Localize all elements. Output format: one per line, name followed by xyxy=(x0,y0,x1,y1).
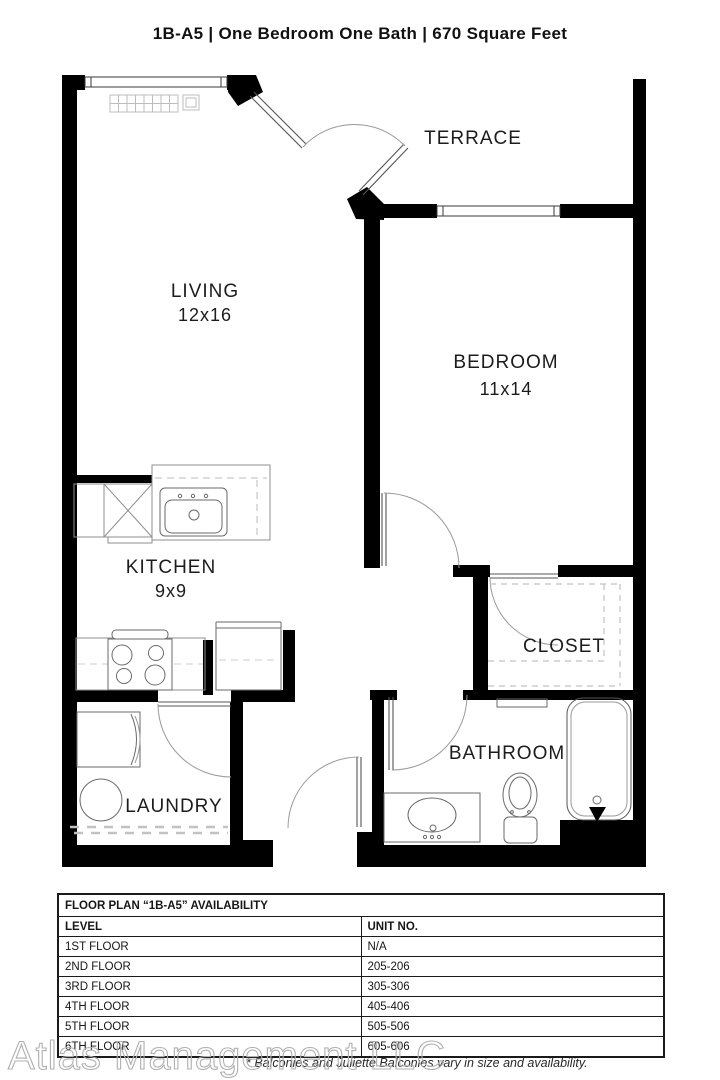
table-row: 3RD FLOOR 305-306 xyxy=(58,977,664,997)
stove xyxy=(108,630,172,690)
table-row: 4TH FLOOR 405-406 xyxy=(58,997,664,1017)
table-row: 1ST FLOOR N/A xyxy=(58,937,664,957)
bedroom-window xyxy=(437,206,560,216)
kitchen-label: KITCHEN xyxy=(126,557,216,578)
bedroom-label: BEDROOM xyxy=(453,352,558,373)
refrigerator xyxy=(216,622,281,690)
bathroom-niche xyxy=(497,699,547,707)
bathroom-label: BATHROOM xyxy=(449,743,565,764)
kitchen-sink xyxy=(160,488,227,536)
entry-door xyxy=(288,757,361,828)
table-row: 2ND FLOOR 205-206 xyxy=(58,957,664,977)
level-cell: 3RD FLOOR xyxy=(58,977,361,997)
toilet xyxy=(503,773,537,843)
bedroom-dims: 11x14 xyxy=(480,379,533,399)
closet-shelf-dashes xyxy=(488,584,620,686)
bathtub xyxy=(567,698,631,822)
terrace-french-door xyxy=(250,92,408,195)
laundry-shelf-dashes xyxy=(70,827,228,833)
living-window xyxy=(85,77,227,87)
unit-cell: 405-406 xyxy=(361,997,664,1017)
laundry-label: LAUNDRY xyxy=(125,796,222,817)
col-unit-no: UNIT NO. xyxy=(361,917,664,937)
floor-plan-drawing: TERRACE LIVING 12x16 BEDROOM 11x14 KITCH… xyxy=(0,0,720,890)
unit-cell: 205-206 xyxy=(361,957,664,977)
table-title-row: FLOOR PLAN “1B-A5” AVAILABILITY xyxy=(58,894,664,917)
kitchen-pantry xyxy=(74,484,152,543)
laundry-door xyxy=(158,702,231,777)
bedroom-door xyxy=(382,493,459,568)
closet-door xyxy=(490,574,558,645)
table-title: FLOOR PLAN “1B-A5” AVAILABILITY xyxy=(58,894,664,917)
living-label: LIVING xyxy=(171,281,239,302)
water-heater xyxy=(80,779,122,821)
washer xyxy=(77,712,140,767)
table-header-row: LEVEL UNIT NO. xyxy=(58,917,664,937)
unit-cell: N/A xyxy=(361,937,664,957)
heater-grid xyxy=(110,95,199,112)
col-level: LEVEL xyxy=(58,917,361,937)
watermark-text: Atlas Management LLC xyxy=(8,1034,446,1079)
kitchen-dims: 9x9 xyxy=(155,581,187,601)
terrace-label: TERRACE xyxy=(424,128,522,149)
unit-cell: 305-306 xyxy=(361,977,664,997)
bathroom-vanity xyxy=(384,793,480,842)
level-cell: 2ND FLOOR xyxy=(58,957,361,977)
level-cell: 4TH FLOOR xyxy=(58,997,361,1017)
closet-label: CLOSET xyxy=(523,636,605,657)
living-dims: 12x16 xyxy=(178,305,232,325)
level-cell: 1ST FLOOR xyxy=(58,937,361,957)
